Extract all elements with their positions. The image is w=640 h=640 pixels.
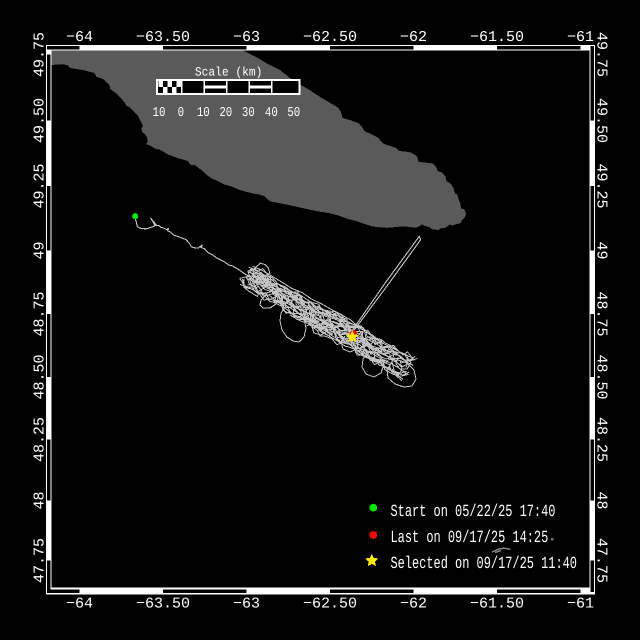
svg-text:48: 48 [593, 491, 610, 509]
svg-text:48: 48 [32, 491, 49, 509]
svg-text:48.75: 48.75 [593, 291, 610, 336]
svg-text:49: 49 [32, 241, 49, 259]
svg-text:−61: −61 [567, 596, 594, 613]
svg-text:47.75: 47.75 [32, 538, 49, 583]
svg-text:−64: −64 [66, 596, 93, 613]
svg-text:−61: −61 [567, 29, 594, 46]
svg-text:48.50: 48.50 [32, 354, 49, 399]
svg-text:−61.50: −61.50 [470, 29, 524, 46]
svg-text:−62: −62 [400, 596, 427, 613]
svg-text:48.25: 48.25 [593, 417, 610, 462]
svg-text:−63: −63 [233, 29, 260, 46]
svg-text:49.75: 49.75 [593, 32, 610, 77]
svg-text:30: 30 [242, 106, 255, 121]
svg-text:−62.50: −62.50 [303, 29, 357, 46]
svg-text:49.50: 49.50 [32, 98, 49, 143]
svg-text:−64: −64 [66, 29, 93, 46]
svg-text:Last on 09/17/25 14:25: Last on 09/17/25 14:25 [391, 529, 549, 548]
svg-text:Scale (km): Scale (km) [195, 66, 263, 80]
svg-text:48.75: 48.75 [32, 291, 49, 336]
svg-text:48.25: 48.25 [32, 417, 49, 462]
svg-text:−63.50: −63.50 [136, 596, 190, 613]
svg-text:47.75: 47.75 [593, 538, 610, 583]
svg-text:Selected on 09/17/25 11:40: Selected on 09/17/25 11:40 [391, 555, 577, 574]
svg-text:−63: −63 [233, 596, 260, 613]
svg-text:40: 40 [265, 106, 278, 121]
svg-text:20: 20 [219, 106, 232, 121]
svg-text:Start on 05/22/25 17:40: Start on 05/22/25 17:40 [391, 503, 556, 522]
svg-text:10: 10 [153, 106, 166, 121]
svg-text:−63.50: −63.50 [136, 29, 190, 46]
svg-text:49.25: 49.25 [593, 163, 610, 208]
svg-text:10: 10 [197, 106, 210, 121]
svg-text:49: 49 [593, 241, 610, 259]
svg-text:−61.50: −61.50 [470, 596, 524, 613]
svg-text:49.50: 49.50 [593, 98, 610, 143]
svg-text:49.25: 49.25 [32, 163, 49, 208]
svg-text:49.75: 49.75 [32, 32, 49, 77]
svg-text:−62.50: −62.50 [303, 596, 357, 613]
svg-text:0: 0 [178, 106, 184, 121]
svg-text:48.50: 48.50 [593, 354, 610, 399]
svg-text:−62: −62 [400, 29, 427, 46]
svg-text:50: 50 [287, 106, 300, 121]
